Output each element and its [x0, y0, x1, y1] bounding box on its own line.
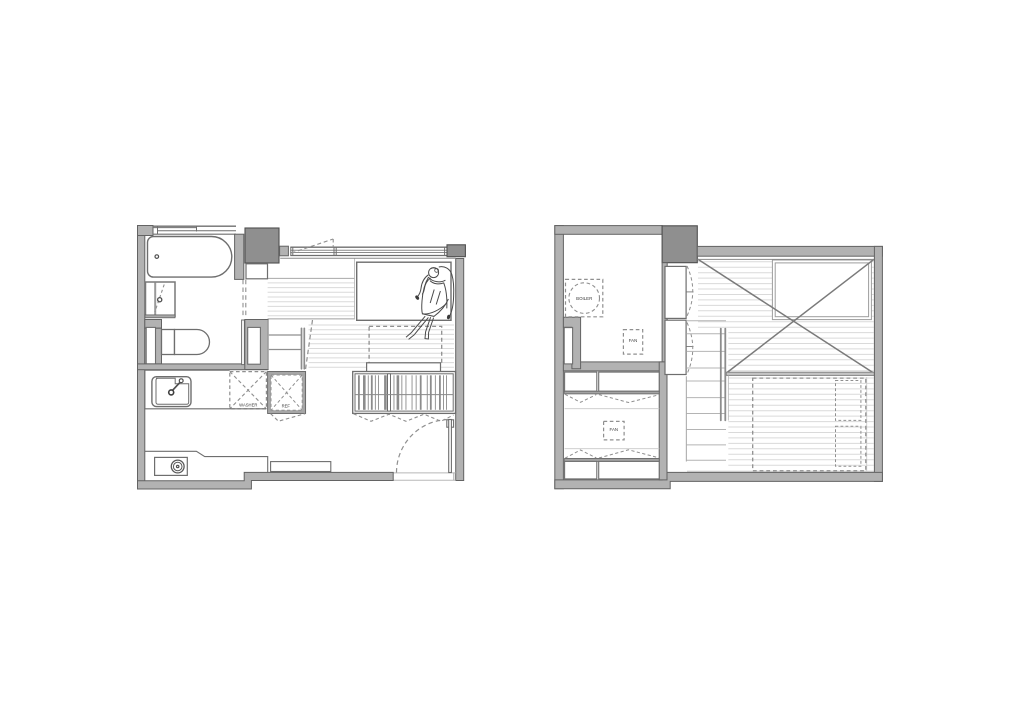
svg-text:BOILER: BOILER — [576, 296, 592, 301]
svg-text:FAN: FAN — [629, 338, 638, 343]
svg-text:WASHER: WASHER — [239, 403, 257, 408]
svg-text:FAN: FAN — [610, 427, 619, 432]
svg-text:REF: REF — [282, 403, 291, 408]
